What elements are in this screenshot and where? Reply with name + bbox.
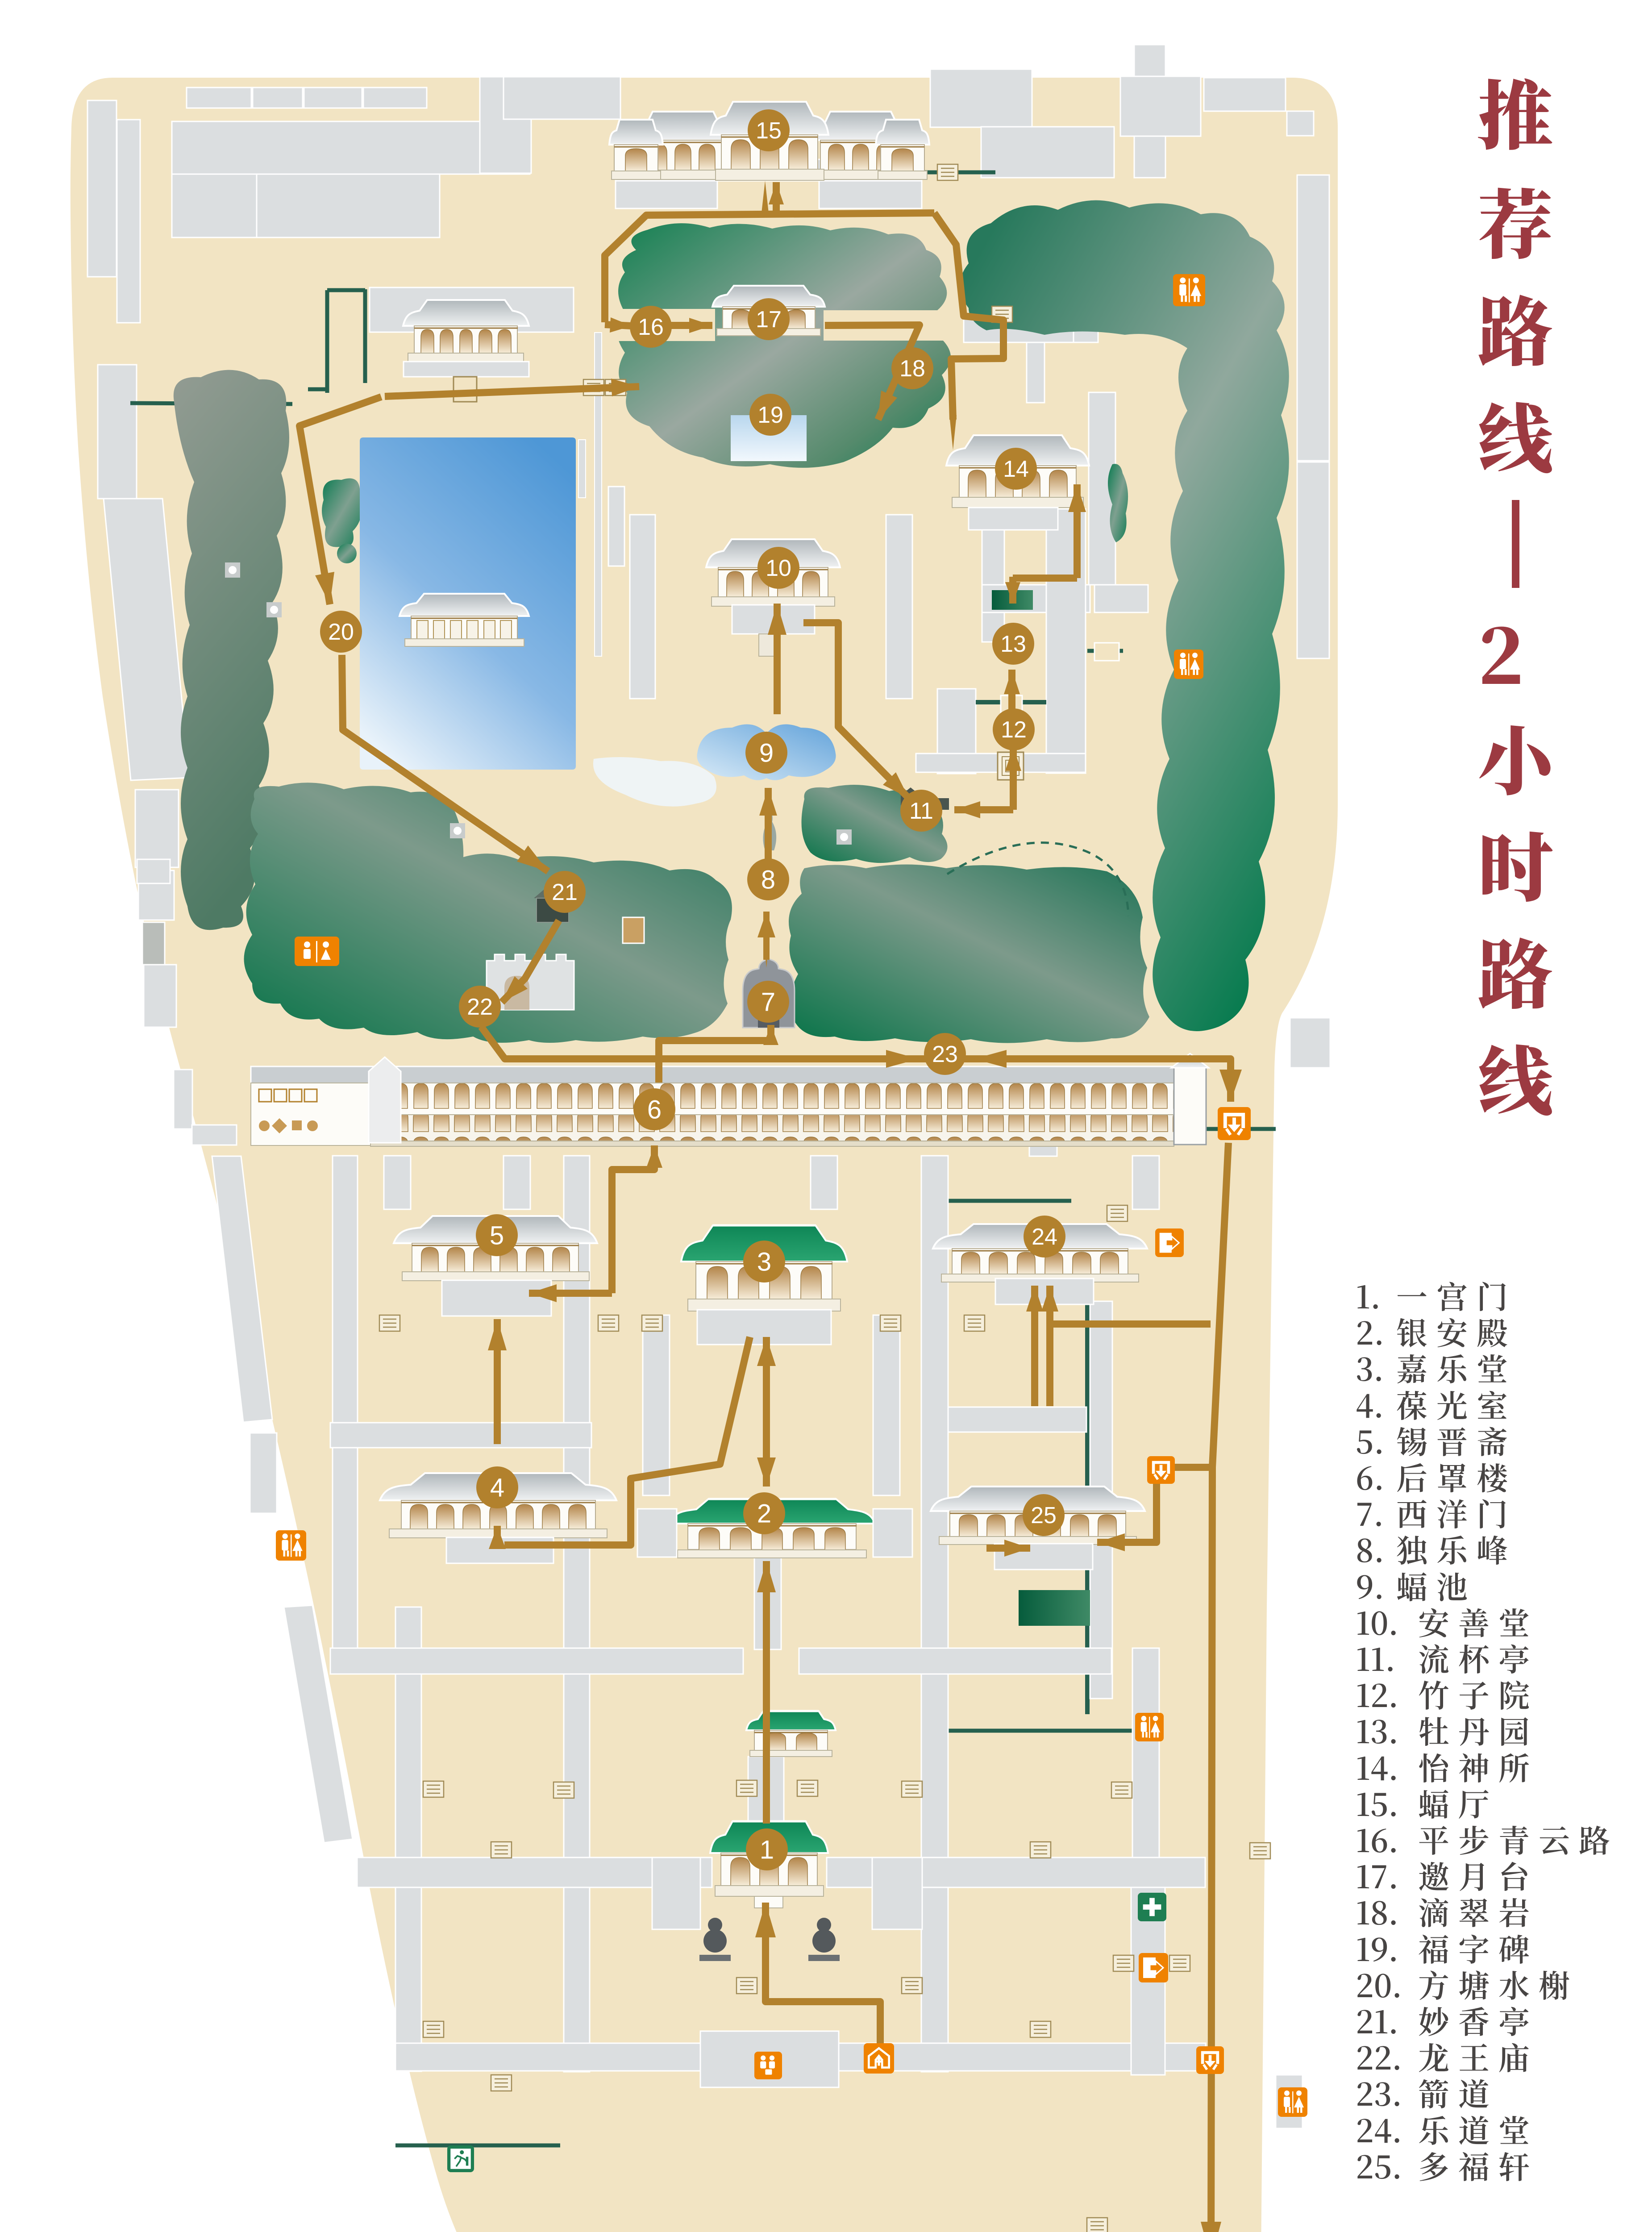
svg-text:22: 22 — [467, 994, 493, 1020]
svg-text:8: 8 — [761, 866, 775, 895]
svg-text:18: 18 — [899, 356, 925, 382]
svg-text:3: 3 — [757, 1248, 771, 1277]
svg-text:15: 15 — [756, 118, 782, 144]
svg-text:9: 9 — [759, 739, 774, 768]
svg-text:17: 17 — [756, 307, 782, 333]
svg-text:2: 2 — [757, 1499, 771, 1528]
svg-text:11: 11 — [909, 798, 933, 824]
svg-text:5: 5 — [490, 1221, 504, 1250]
svg-text:6: 6 — [647, 1095, 662, 1124]
svg-text:16: 16 — [638, 314, 664, 340]
svg-text:10: 10 — [766, 555, 791, 581]
svg-text:19: 19 — [757, 402, 783, 428]
svg-text:7: 7 — [761, 988, 775, 1017]
svg-text:14: 14 — [1003, 456, 1029, 482]
svg-text:4: 4 — [490, 1474, 504, 1503]
svg-text:12: 12 — [1001, 717, 1027, 743]
svg-text:20: 20 — [328, 619, 354, 645]
svg-text:13: 13 — [1000, 631, 1026, 657]
svg-text:25: 25 — [1031, 1503, 1057, 1528]
svg-text:21: 21 — [552, 879, 578, 905]
svg-text:24: 24 — [1032, 1224, 1057, 1250]
svg-text:23: 23 — [932, 1041, 958, 1067]
svg-text:1: 1 — [760, 1836, 774, 1865]
